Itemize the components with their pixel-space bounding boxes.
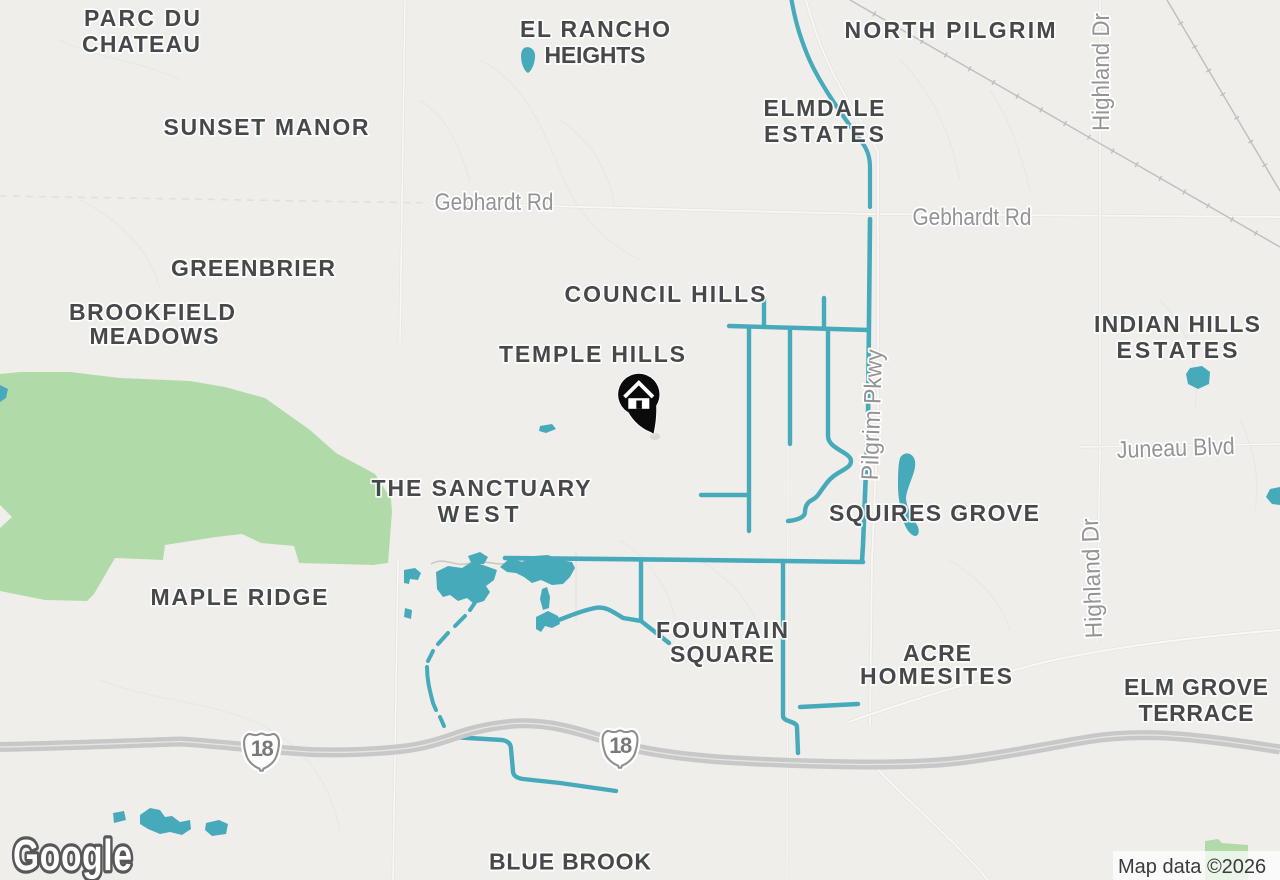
svg-text:Juneau Blvd: Juneau Blvd xyxy=(1116,433,1235,464)
svg-text:Gebhardt Rd: Gebhardt Rd xyxy=(435,189,554,216)
svg-text:NORTH PILGRIM: NORTH PILGRIM xyxy=(845,17,1056,43)
svg-text:GREENBRIER: GREENBRIER xyxy=(171,255,335,281)
svg-text:MEADOWS: MEADOWS xyxy=(90,323,219,349)
svg-text:EL RANCHO: EL RANCHO xyxy=(520,16,670,42)
svg-text:Highland Dr: Highland Dr xyxy=(1088,13,1115,131)
svg-text:INDIAN HILLS: INDIAN HILLS xyxy=(1094,311,1260,337)
svg-text:WEST: WEST xyxy=(438,501,519,527)
svg-text:PARC DU: PARC DU xyxy=(84,5,200,31)
svg-text:FOUNTAIN: FOUNTAIN xyxy=(656,617,788,643)
svg-text:COUNCIL HILLS: COUNCIL HILLS xyxy=(565,281,766,307)
svg-text:ELM GROVE: ELM GROVE xyxy=(1124,674,1268,700)
svg-text:18: 18 xyxy=(251,736,274,761)
svg-text:BLUE BROOK: BLUE BROOK xyxy=(489,849,651,875)
svg-text:HEIGHTS: HEIGHTS xyxy=(545,42,646,68)
svg-text:Map data ©2026: Map data ©2026 xyxy=(1118,856,1266,878)
svg-text:ELMDALE: ELMDALE xyxy=(764,95,885,121)
svg-text:TERRACE: TERRACE xyxy=(1139,700,1254,726)
svg-text:Gebhardt Rd: Gebhardt Rd xyxy=(913,204,1032,231)
svg-text:Google: Google xyxy=(13,832,133,880)
svg-text:Pilgrim Pkwy: Pilgrim Pkwy xyxy=(857,349,889,481)
svg-text:SQUIRES GROVE: SQUIRES GROVE xyxy=(829,500,1039,526)
svg-text:TEMPLE HILLS: TEMPLE HILLS xyxy=(499,341,685,367)
svg-text:18: 18 xyxy=(609,733,632,758)
svg-text:Highland Dr: Highland Dr xyxy=(1077,518,1108,639)
svg-text:SQUARE: SQUARE xyxy=(670,641,774,667)
svg-text:BROOKFIELD: BROOKFIELD xyxy=(69,299,235,325)
svg-text:SUNSET MANOR: SUNSET MANOR xyxy=(164,114,369,140)
svg-text:MAPLE RIDGE: MAPLE RIDGE xyxy=(151,584,328,610)
